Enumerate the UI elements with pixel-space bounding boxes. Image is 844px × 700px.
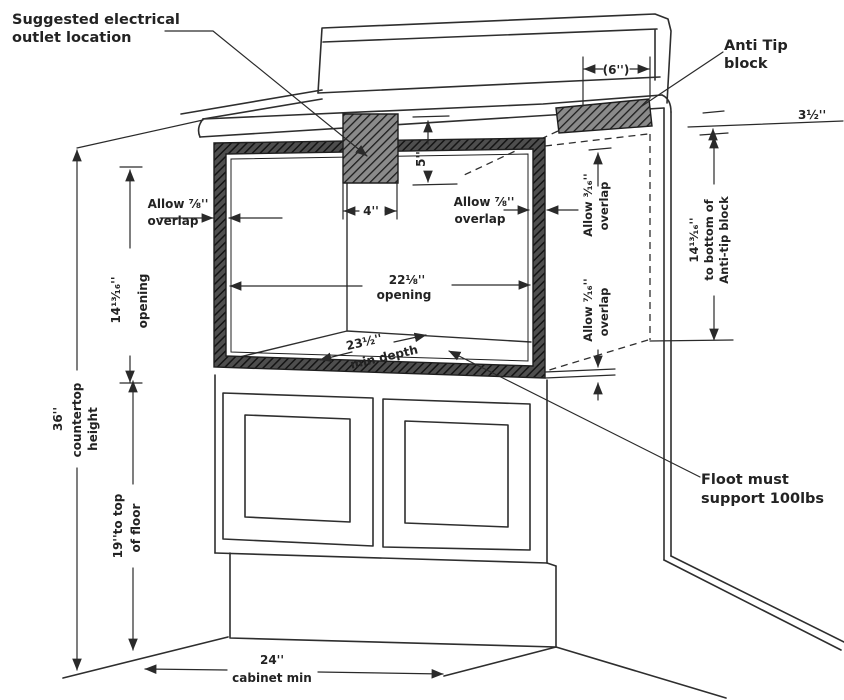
countertop-height-line3: height bbox=[86, 407, 100, 451]
hidden-edges bbox=[462, 131, 650, 371]
depth-line1: 23½'' bbox=[345, 331, 384, 353]
leader-outlet bbox=[165, 31, 367, 156]
dimension-lines bbox=[77, 31, 843, 674]
dim-6in-label: (6'') bbox=[603, 63, 630, 77]
floor-left-diagonal bbox=[63, 637, 228, 678]
leader-anti-tip bbox=[642, 52, 723, 106]
cabinet-face-bottom bbox=[215, 553, 547, 563]
backsplash bbox=[318, 14, 671, 103]
overlap-left-line2: overlap bbox=[148, 214, 199, 228]
right-wall-floor-diagonal bbox=[664, 560, 841, 650]
dim-4in-label: 4'' bbox=[363, 204, 379, 218]
overlap-316-line1: Allow ³⁄₁₆'' bbox=[581, 173, 595, 236]
opening-height-line1: 14¹³⁄₁₆'' bbox=[109, 276, 123, 323]
overlap-left-line1: Allow ⅞'' bbox=[148, 197, 209, 211]
opening-width-line2: opening bbox=[377, 288, 432, 302]
floor-lines bbox=[63, 637, 726, 698]
backsplash-outline bbox=[318, 14, 671, 103]
opening-height-line2: opening bbox=[136, 274, 150, 329]
opening-interior bbox=[227, 154, 531, 360]
plinth bbox=[230, 553, 556, 647]
overlap-right-line1: Allow ⅞'' bbox=[454, 195, 515, 209]
dim-5in-label: 5'' bbox=[414, 151, 428, 167]
tick-3-5 bbox=[703, 111, 724, 113]
countertop-height-line2: countertop bbox=[70, 382, 84, 457]
backsplash-bottom-edge bbox=[318, 77, 660, 93]
antitip-height-line1: 14¹³⁄₁₆'' bbox=[687, 217, 701, 262]
installation-diagram: Suggested electrical outlet location Ant… bbox=[0, 0, 844, 700]
tick-1413r-bottom bbox=[650, 340, 733, 341]
door-right-inner bbox=[405, 421, 508, 527]
hidden-top-edge bbox=[545, 134, 648, 146]
dim-22 bbox=[230, 285, 530, 286]
outlet-note-line1: Suggested electrical bbox=[12, 12, 180, 28]
cabinet-min-line1: 24'' bbox=[260, 653, 284, 667]
interior-floor-left-edge bbox=[227, 331, 347, 360]
floor-front-edge bbox=[444, 647, 556, 676]
ext-716-b bbox=[545, 375, 615, 378]
right-side-wall bbox=[664, 108, 844, 650]
tick-316 bbox=[589, 148, 611, 150]
floor-right-diagonal bbox=[556, 647, 726, 698]
ext-36-top bbox=[77, 120, 203, 148]
ext-716-a bbox=[545, 369, 615, 372]
leader-floor-note bbox=[449, 351, 700, 477]
overlap-316-line2: overlap bbox=[597, 182, 611, 231]
right-wall-floor-diagonal-2 bbox=[671, 556, 844, 642]
countertop-height-line1: 36'' bbox=[51, 407, 65, 431]
counter-left-cap bbox=[199, 119, 203, 137]
overlap-right-line2: overlap bbox=[455, 212, 506, 226]
anti-tip-block bbox=[556, 99, 652, 133]
tick-1413r-top bbox=[700, 133, 728, 135]
overlap-716-line2: overlap bbox=[597, 288, 611, 337]
opening-frame-inner-line bbox=[231, 154, 528, 361]
base-cabinet bbox=[215, 375, 556, 647]
antitip-height-line3: Anti-tip block bbox=[717, 196, 731, 284]
installation-diagram-page: Suggested electrical outlet location Ant… bbox=[0, 0, 844, 700]
backsplash-cap-line bbox=[323, 29, 657, 42]
antitip-height-line2: to bottom of bbox=[702, 198, 716, 280]
dim-3-5in-label: 3½'' bbox=[798, 108, 826, 122]
floor-note-line1: Floot must bbox=[701, 472, 789, 488]
door-left-inner bbox=[245, 415, 350, 522]
electrical-outlet-block bbox=[343, 114, 398, 183]
outlet-note-line2: outlet location bbox=[12, 30, 132, 46]
opening-width-line1: 22⅛'' bbox=[389, 273, 425, 287]
cabinet-min-line2: cabinet min bbox=[232, 671, 312, 685]
tick-5-top bbox=[413, 116, 449, 117]
hidden-bottom-edge bbox=[546, 340, 648, 371]
anti-tip-note-line2: block bbox=[724, 56, 768, 72]
floor-height-line2: of floor bbox=[129, 503, 143, 552]
overlap-716-line1: Allow ⁷⁄₁₆'' bbox=[581, 278, 595, 341]
plinth-step bbox=[547, 563, 556, 566]
tick-5-bottom bbox=[413, 184, 457, 185]
floor-height-line1: 19''to top bbox=[111, 493, 125, 558]
anti-tip-note-line1: Anti Tip bbox=[724, 38, 788, 54]
floor-note-line2: support 100lbs bbox=[701, 491, 824, 507]
